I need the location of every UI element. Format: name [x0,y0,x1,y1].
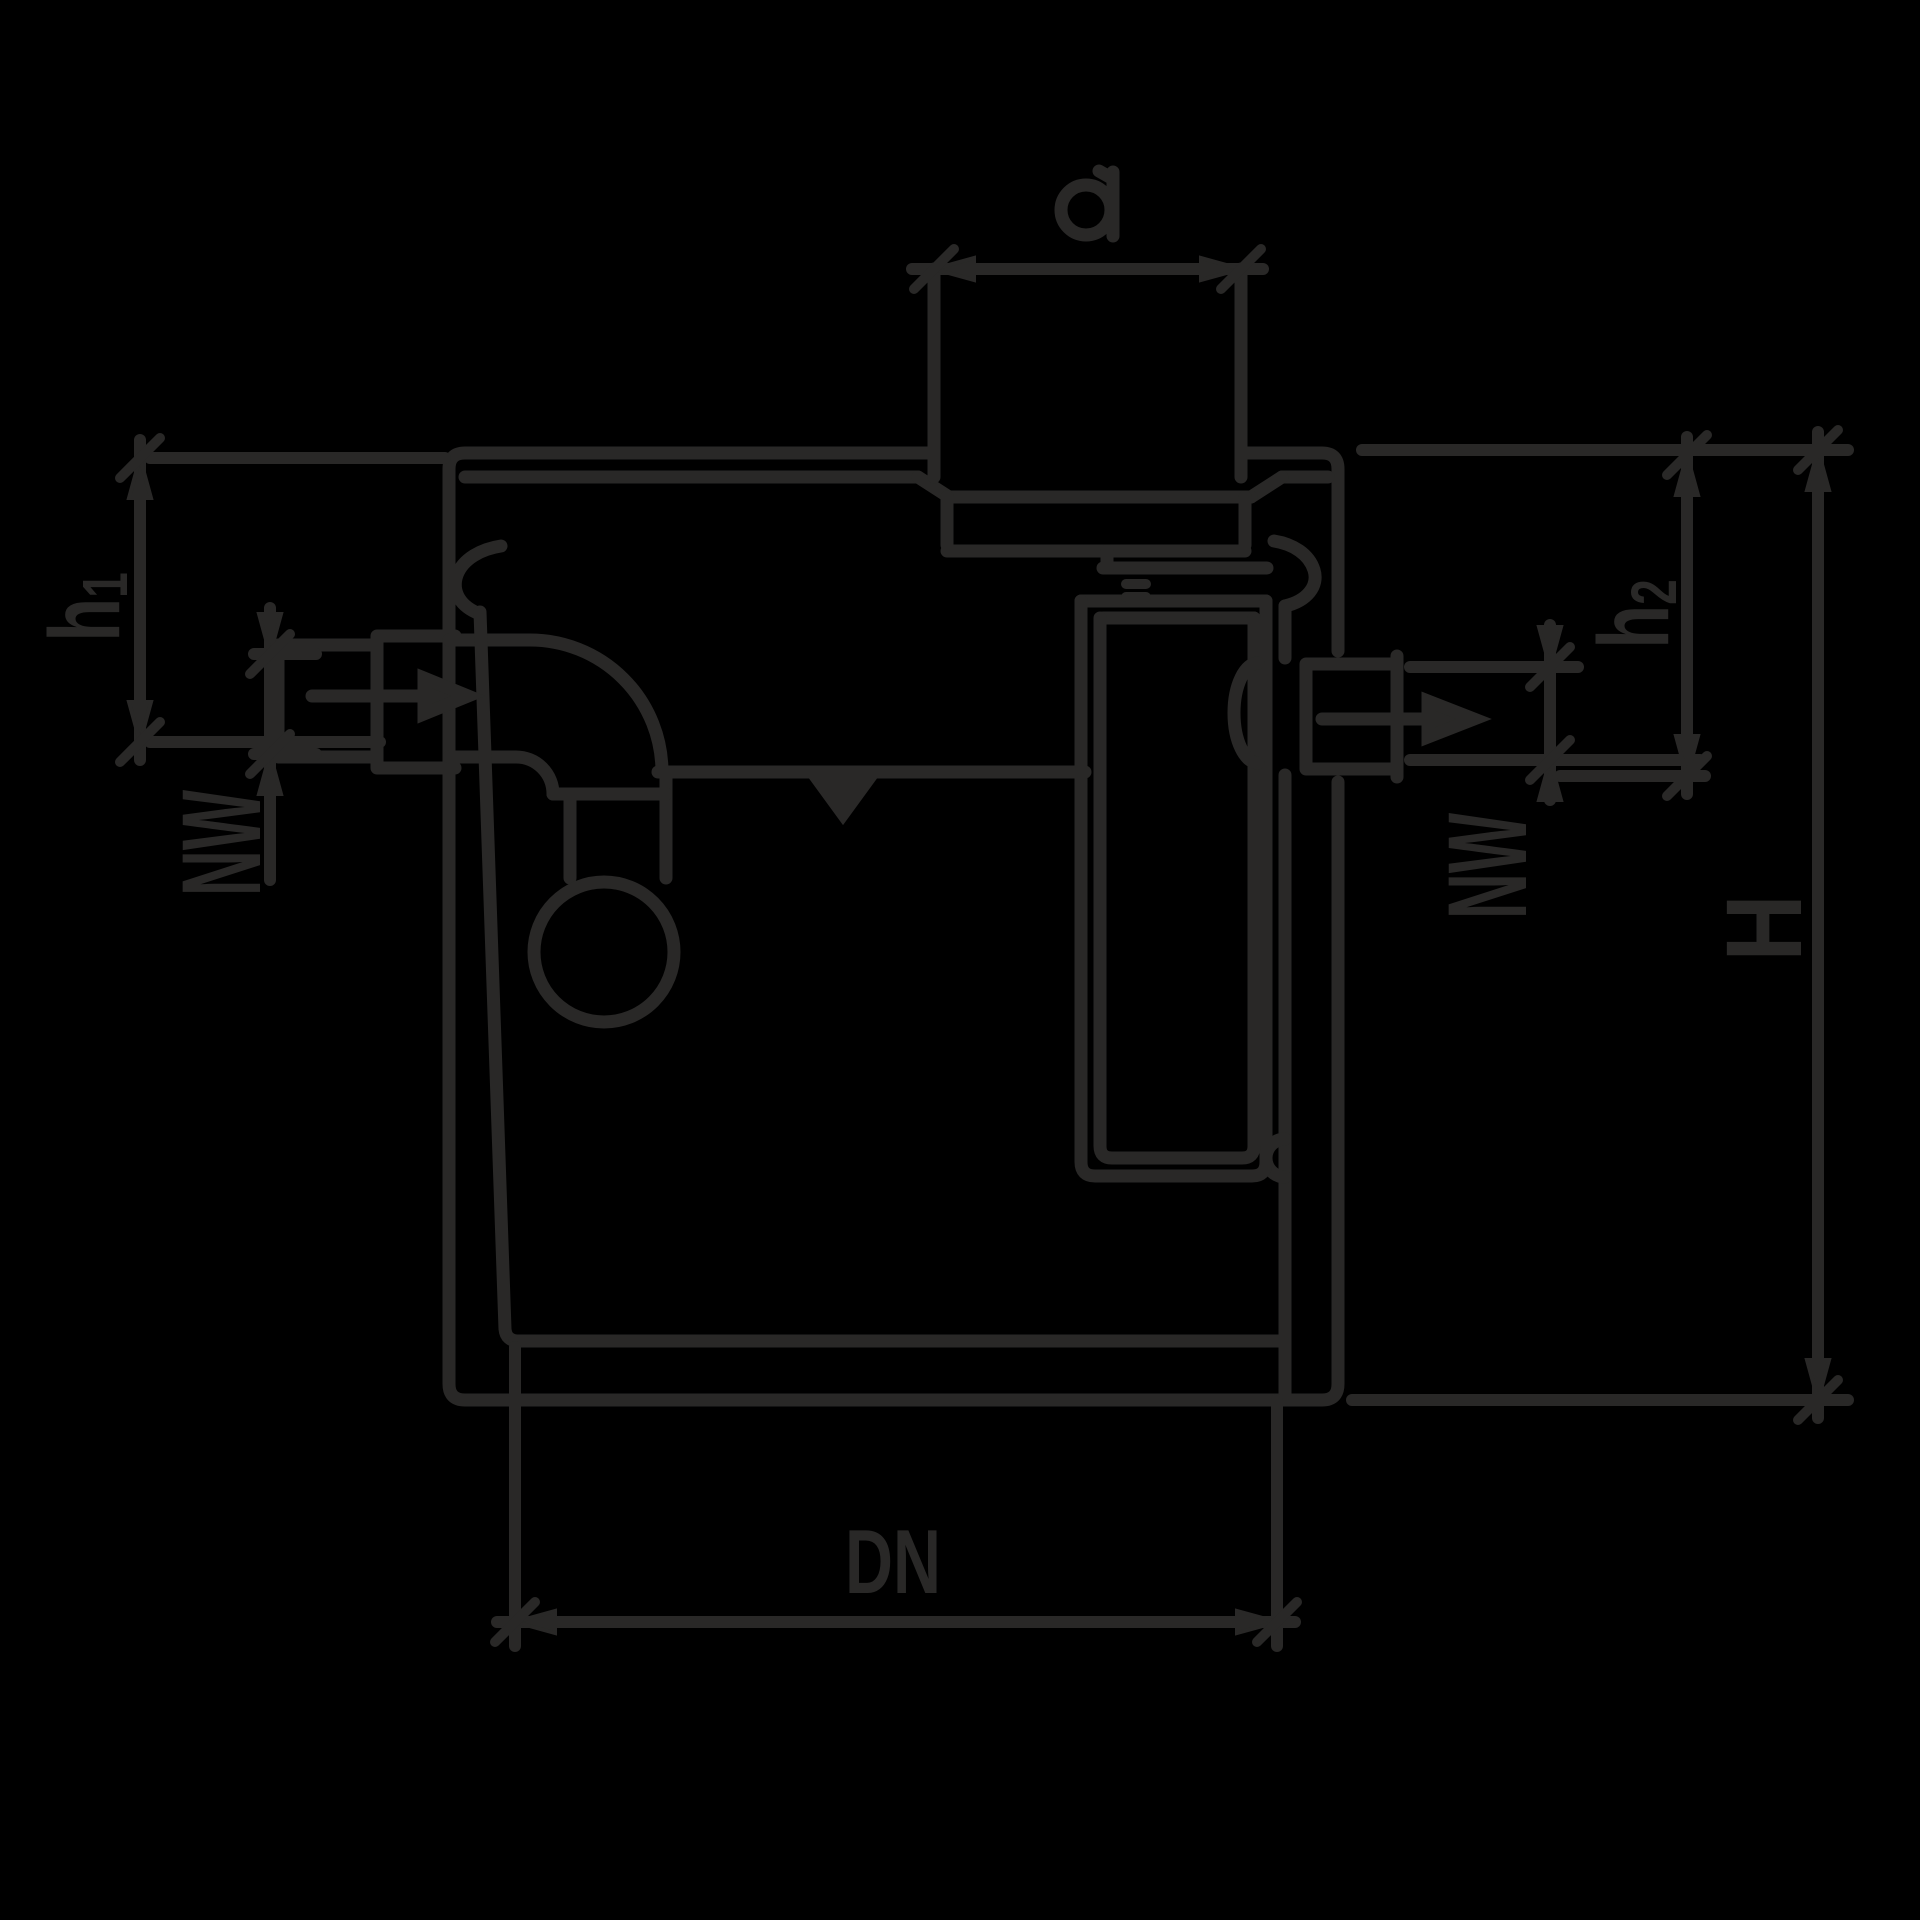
svg-text:NW: NW [1425,813,1550,919]
svg-text:H: H [1704,894,1824,961]
svg-text:NW: NW [159,790,284,896]
svg-text:DN: DN [845,1511,941,1613]
